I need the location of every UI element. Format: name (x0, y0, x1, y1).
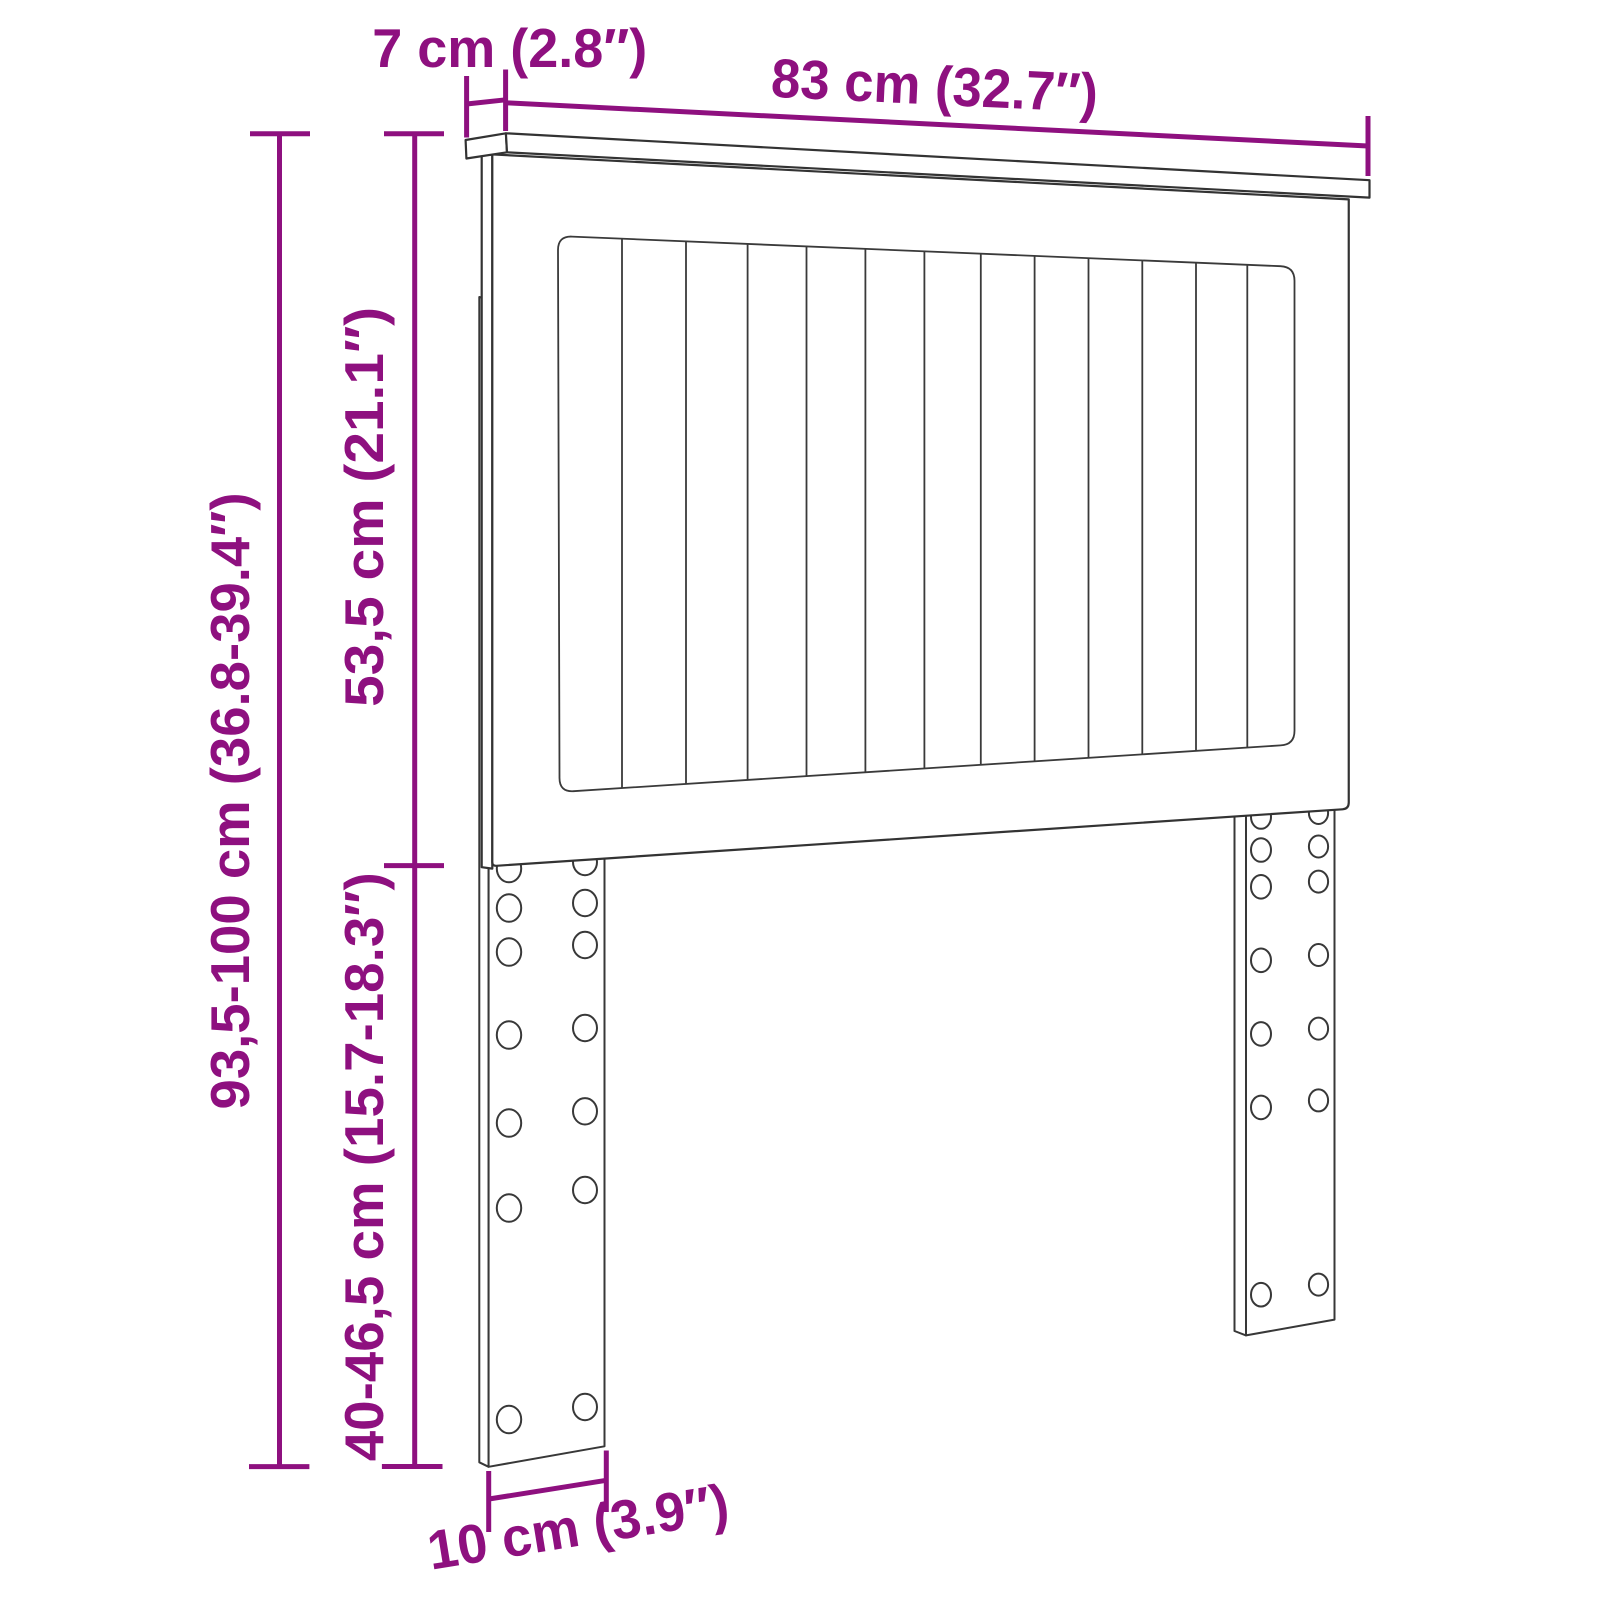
svg-text:40-46,5 cm (15.7-18.3″): 40-46,5 cm (15.7-18.3″) (333, 872, 395, 1461)
svg-text:53,5 cm (21.1″): 53,5 cm (21.1″) (333, 307, 395, 707)
svg-text:7 cm (2.8″): 7 cm (2.8″) (372, 17, 647, 79)
svg-text:93,5-100 cm (36.8-39.4″): 93,5-100 cm (36.8-39.4″) (199, 493, 261, 1110)
